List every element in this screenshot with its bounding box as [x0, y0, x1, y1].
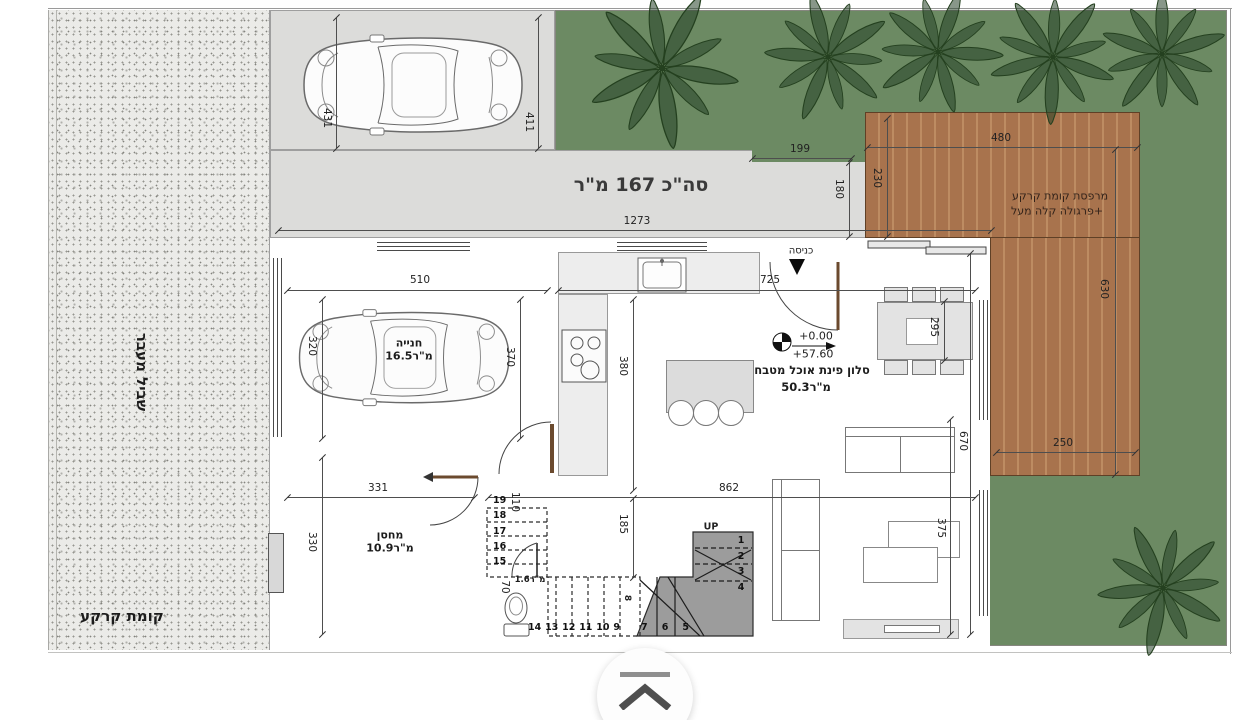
terrace-label-1: מרפסת קומת קרקע	[1012, 190, 1108, 203]
stair-numbers-bottom-solid: 765	[641, 622, 689, 633]
entry-door	[770, 262, 838, 330]
garage-door	[499, 422, 552, 474]
sofa-left	[772, 479, 820, 621]
floor-plan-canvas: 431 411 1273 199 180 230 480 630 250 510…	[0, 0, 1240, 720]
dim-line	[752, 158, 852, 159]
dim-line	[278, 230, 992, 231]
dim-line	[520, 300, 521, 438]
level-zero: +0.00	[799, 330, 833, 343]
garage-area: 16.5מ"ר	[385, 350, 432, 363]
storage-area: 10.9מ"ר	[366, 542, 413, 555]
island-stool	[718, 400, 744, 426]
floor-label: קומת קרקע	[80, 607, 164, 625]
dim-line	[558, 290, 976, 291]
dim-garage-w: 510	[410, 274, 430, 286]
dim-kitchen-h: 380	[617, 356, 629, 376]
entry-arrow-icon	[789, 259, 805, 275]
dim-deck-left: 230	[871, 168, 883, 188]
wc-door	[512, 543, 537, 577]
dim-line	[970, 254, 971, 634]
dim-line	[633, 300, 634, 490]
stair-numbers-right: 1234	[734, 535, 748, 593]
dim-living-w: 375	[935, 518, 947, 538]
dim-line	[322, 458, 323, 634]
kitchen-sink	[638, 258, 686, 292]
dim-strip-h: 180	[833, 179, 845, 199]
stair-numbers-upper-hidden: 1918171615	[493, 495, 506, 567]
dim-line	[287, 290, 548, 291]
dim-garage-h-right: 370	[504, 347, 516, 367]
window-living-right-2	[976, 490, 990, 616]
chevron-up-icon	[617, 682, 673, 710]
dim-parking-right: 411	[523, 112, 535, 132]
window-living-right-1	[976, 300, 990, 420]
dim-entry-span: 725	[760, 274, 780, 286]
stairs-up-label: UP	[704, 522, 719, 533]
window-garage-left	[270, 258, 284, 437]
sofa-top	[845, 427, 955, 473]
dim-line	[322, 300, 323, 438]
level-absolute: +57.60	[793, 348, 834, 361]
storage-door	[423, 472, 478, 525]
window-kitchen-top	[617, 239, 707, 251]
step-8-number: 8	[622, 595, 632, 601]
wc-area: 1.6מ"ר	[515, 575, 546, 585]
garage-name: חנייה	[396, 337, 423, 350]
dim-deck-top: 480	[991, 132, 1011, 144]
dim-storage-w: 331	[368, 482, 388, 494]
living-area: 50.3מ"ר	[781, 380, 831, 394]
storage-name: מחסן	[377, 529, 404, 542]
stove-cooktop	[562, 330, 606, 382]
dim-landing: 110	[509, 492, 521, 512]
dim-garage-h-left: 320	[306, 336, 318, 356]
dim-line	[488, 497, 976, 498]
dim-step-w: 199	[790, 143, 810, 155]
dim-wc-w: 70	[499, 580, 511, 593]
total-area-label: סה"כ 167 מ"ר	[574, 174, 709, 196]
dim-line	[996, 452, 1136, 453]
dim-line	[287, 497, 475, 498]
dim-stair-hall: 185	[617, 514, 629, 534]
dining-chair	[884, 360, 908, 375]
dim-line	[867, 147, 1138, 148]
dim-line	[944, 302, 945, 360]
dim-line	[633, 499, 634, 577]
terrace-label-2: +פרגולה קלה מעל	[1011, 205, 1103, 218]
dining-chair	[912, 360, 936, 375]
dim-living-h: 670	[957, 431, 969, 451]
sliding-door	[868, 241, 986, 254]
island-stool	[668, 400, 694, 426]
window-storage-left	[268, 533, 284, 593]
island-stool	[693, 400, 719, 426]
dim-deck-bottom: 250	[1053, 437, 1073, 449]
dim-table: 295	[928, 317, 940, 337]
entry-label: כניסה	[789, 246, 814, 257]
dim-hall-w: 862	[719, 482, 739, 494]
dim-parking-left: 431	[321, 108, 333, 128]
dim-overall: 1273	[624, 215, 651, 227]
toilet	[504, 593, 529, 636]
stair-numbers-bottom-hidden: 14131211109	[528, 622, 620, 633]
coffee-table-2	[863, 547, 938, 583]
window-garage-top	[377, 239, 470, 251]
living-name: סלון פינת אוכל מטבח	[754, 363, 870, 377]
collapse-bar-icon	[620, 672, 670, 677]
dim-line	[849, 163, 850, 236]
dim-line	[538, 18, 539, 148]
dim-line	[1115, 150, 1116, 474]
path-label: שביל מעבר	[133, 333, 151, 411]
tv-set	[884, 625, 940, 633]
dim-line	[336, 18, 337, 148]
dim-line	[950, 420, 951, 634]
dim-line	[887, 119, 888, 236]
dim-deck-right: 630	[1098, 279, 1110, 299]
dim-storage-h: 330	[306, 532, 318, 552]
